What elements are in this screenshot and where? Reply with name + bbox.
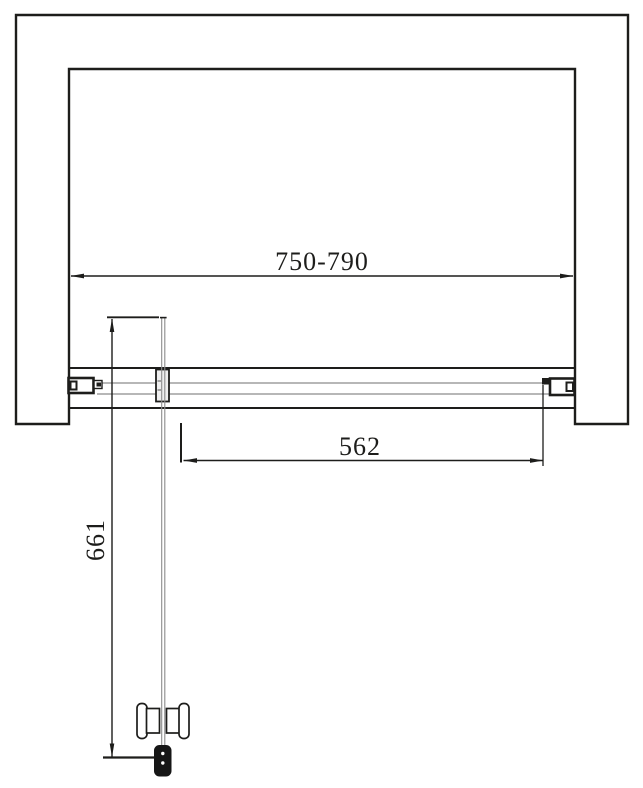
handle-cap-left bbox=[137, 704, 147, 739]
dim-opening-arrow-left bbox=[184, 458, 198, 463]
handle-stem-right bbox=[167, 709, 180, 734]
left-profile-bracket-pin bbox=[97, 383, 102, 387]
dim-door-opening: 562 bbox=[181, 385, 543, 466]
dim-length-arrow-up bbox=[110, 319, 115, 333]
left-wall-profile bbox=[69, 378, 103, 393]
door-track bbox=[69, 368, 575, 408]
wall-path bbox=[16, 15, 628, 424]
handle-stem-left bbox=[147, 709, 160, 734]
handle-cap-right bbox=[179, 704, 189, 739]
dim-opening-arrow-right bbox=[530, 458, 543, 463]
bottom-guide-screw-upper bbox=[161, 752, 164, 755]
bottom-guide-body bbox=[155, 746, 172, 777]
right-wall-profile bbox=[542, 378, 575, 395]
pivot-block bbox=[156, 370, 169, 402]
shower-door-plan-drawing: 750-790 562 661 bbox=[0, 0, 643, 788]
drawing-canvas: 750-790 562 661 bbox=[0, 0, 643, 788]
dim-length-label: 661 bbox=[81, 519, 110, 561]
dim-length-arrow-down bbox=[110, 744, 115, 758]
dim-overall-arrow-left bbox=[71, 274, 85, 279]
right-profile-clamp bbox=[567, 383, 574, 392]
left-profile-clamp bbox=[71, 382, 77, 390]
bottom-guide bbox=[155, 746, 172, 777]
dim-overall-width: 750-790 bbox=[71, 247, 574, 278]
bottom-guide-screw-lower bbox=[161, 761, 164, 764]
dim-overall-arrow-right bbox=[560, 274, 574, 279]
dim-opening-label: 562 bbox=[339, 432, 381, 461]
wall-outline bbox=[16, 15, 628, 424]
door-handle bbox=[137, 704, 189, 739]
dim-overall-label: 750-790 bbox=[275, 247, 369, 276]
pivot-block-body bbox=[156, 370, 169, 402]
